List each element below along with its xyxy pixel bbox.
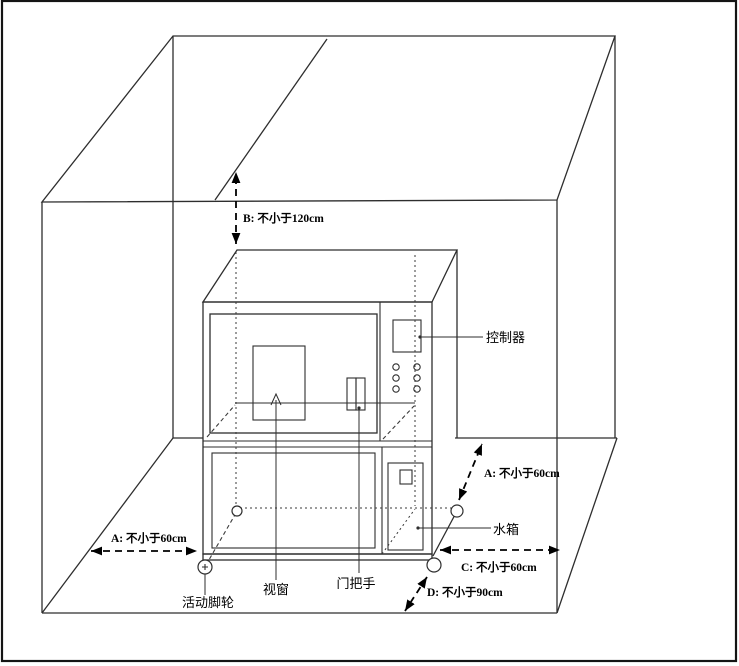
dim-a-right-label: A: 不小于60cm [484,466,560,480]
dim-b-label: B: 不小于120cm [243,211,324,225]
room-outline [42,36,617,613]
front-right-caster [427,558,441,572]
dimension-c: C: 不小于60cm [440,550,560,574]
chamber-section-divider [203,441,432,447]
door-handle [347,378,365,410]
clearance-diagram: B: 不小于120cm A: 不小于60cm A: 不小于60cm C: 不小于… [0,0,739,666]
dimension-b: B: 不小于120cm [236,172,324,244]
room-floor-right-edge [557,438,617,613]
dim-a-left-label: A: 不小于60cm [111,531,187,545]
diagram-canvas: B: 不小于120cm A: 不小于60cm A: 不小于60cm C: 不小于… [0,0,739,666]
room-floor-left-edge [42,438,173,613]
dim-c-label: C: 不小于60cm [461,560,537,574]
panel-buttons [393,364,420,392]
viewing-window [253,346,305,420]
chamber-top-face [203,250,457,302]
dimension-a-left: A: 不小于60cm [91,531,197,551]
water-tank [382,447,423,554]
hidden-edges [206,252,452,565]
back-right-caster [451,505,463,517]
door-handle-label: 门把手 [336,576,375,591]
door-handle-callout: 门把手 [336,406,375,591]
chamber [198,250,463,574]
room-ceiling-seam [215,39,327,200]
chamber-door [210,314,377,433]
back-left-caster [232,506,242,516]
controller-callout: 控制器 [418,330,525,345]
controller-label: 控制器 [486,330,525,345]
caster-callout: 活动脚轮 [182,574,234,610]
caster-label: 活动脚轮 [182,595,234,610]
viewing-window-label: 视窗 [263,582,289,597]
tank-cap [400,470,412,484]
room-ceiling [42,36,615,202]
image-border [2,1,736,661]
viewing-window-callout: 视窗 [263,394,289,597]
water-tank-label: 水箱 [493,522,519,537]
tank-body [388,463,423,550]
dim-d-label: D: 不小于90cm [427,585,503,599]
controller-display [393,320,421,352]
chamber-base [203,554,432,560]
dimension-a-right: A: 不小于60cm [459,444,560,500]
dimension-d: D: 不小于90cm [405,577,503,611]
